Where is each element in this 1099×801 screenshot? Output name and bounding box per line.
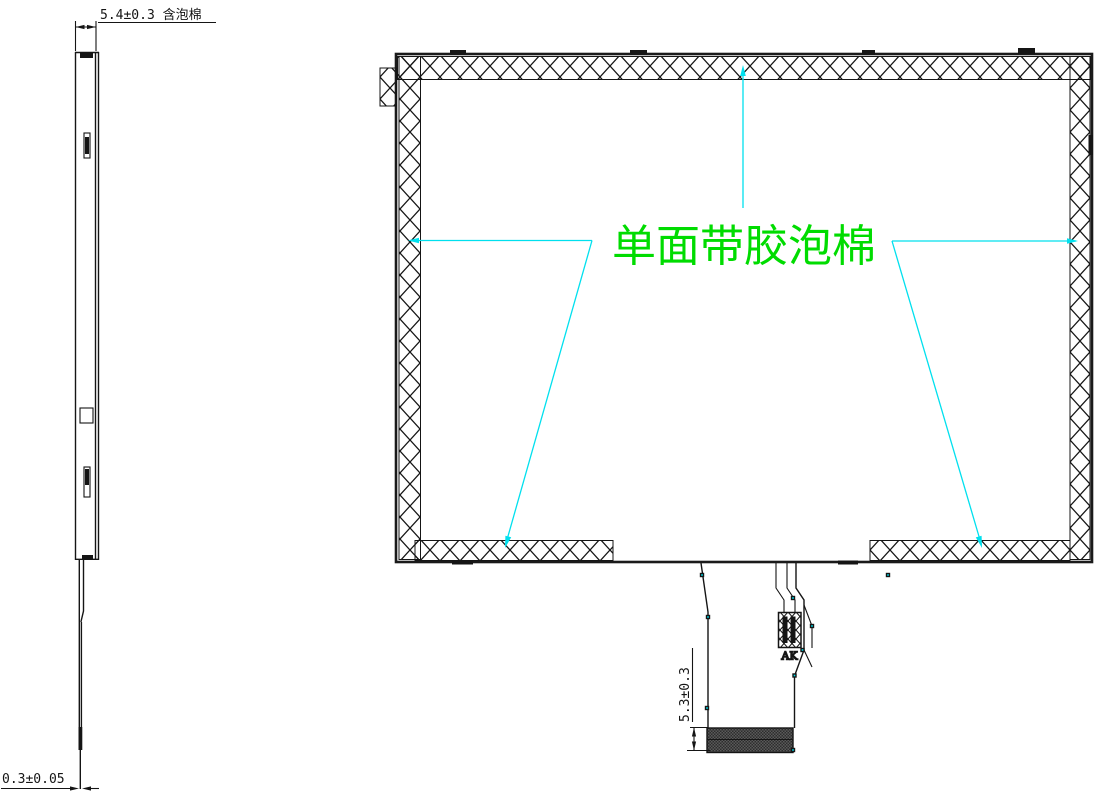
dim-film-thickness: 0.3±0.05 [1,772,99,791]
foam-annotation-label: 单面带胶泡棉 [612,221,876,272]
leader-right-diagonal [892,241,982,545]
fpc-traces [776,563,795,612]
fpc-left-edge [701,563,708,728]
foam-band-right [1070,57,1090,560]
panel-outline [396,54,1092,562]
side-view [75,52,99,789]
fpc-side-stiffener [79,727,83,750]
connector-pin-right [791,617,796,644]
dim-film-thickness-label: 0.3±0.05 [2,772,65,787]
foam-band-bottom-left [415,541,613,561]
leader-lines [408,65,1078,548]
dim-top-thickness: 5.4±0.3 含泡棉 [76,7,217,51]
drawing-page: 5.4±0.3 含泡棉 0.3±0.05 AK [0,0,1099,801]
dim-fpc-tail-label: 5.3±0.3 [678,667,693,722]
edge-mark-top-2 [630,50,647,55]
foam-band-left [399,57,421,560]
foam-band-top [398,57,1091,80]
dim-fpc-tail: 5.3±0.3 [678,648,710,751]
edge-mark-right [1089,135,1094,155]
fpc-side-taper [79,560,83,622]
stiffener-bar [707,728,793,753]
dim-top-thickness-label: 5.4±0.3 含泡棉 [100,7,202,23]
edge-mark-top-4 [1018,48,1035,54]
technical-drawing-canvas: 5.4±0.3 含泡棉 0.3±0.05 AK [0,0,1099,801]
fpc: AK [701,563,890,753]
fpc-flap [804,605,812,667]
connector-label: AK [780,650,798,663]
front-view [380,48,1093,565]
foam-tab-left-outside [380,68,397,106]
connector-pin-left [783,617,788,644]
connector-block [779,613,802,648]
side-opening [80,408,93,423]
side-bottom-tab [82,555,93,560]
edge-mark-top-3 [862,50,875,55]
edge-mark-top-1 [450,50,466,55]
leader-left-diagonal [506,241,593,546]
edge-mark-bottom-2 [838,561,858,565]
side-top-tab [80,53,93,58]
edge-mark-bottom-1 [452,561,473,565]
foam-band-bottom-right [870,541,1070,561]
